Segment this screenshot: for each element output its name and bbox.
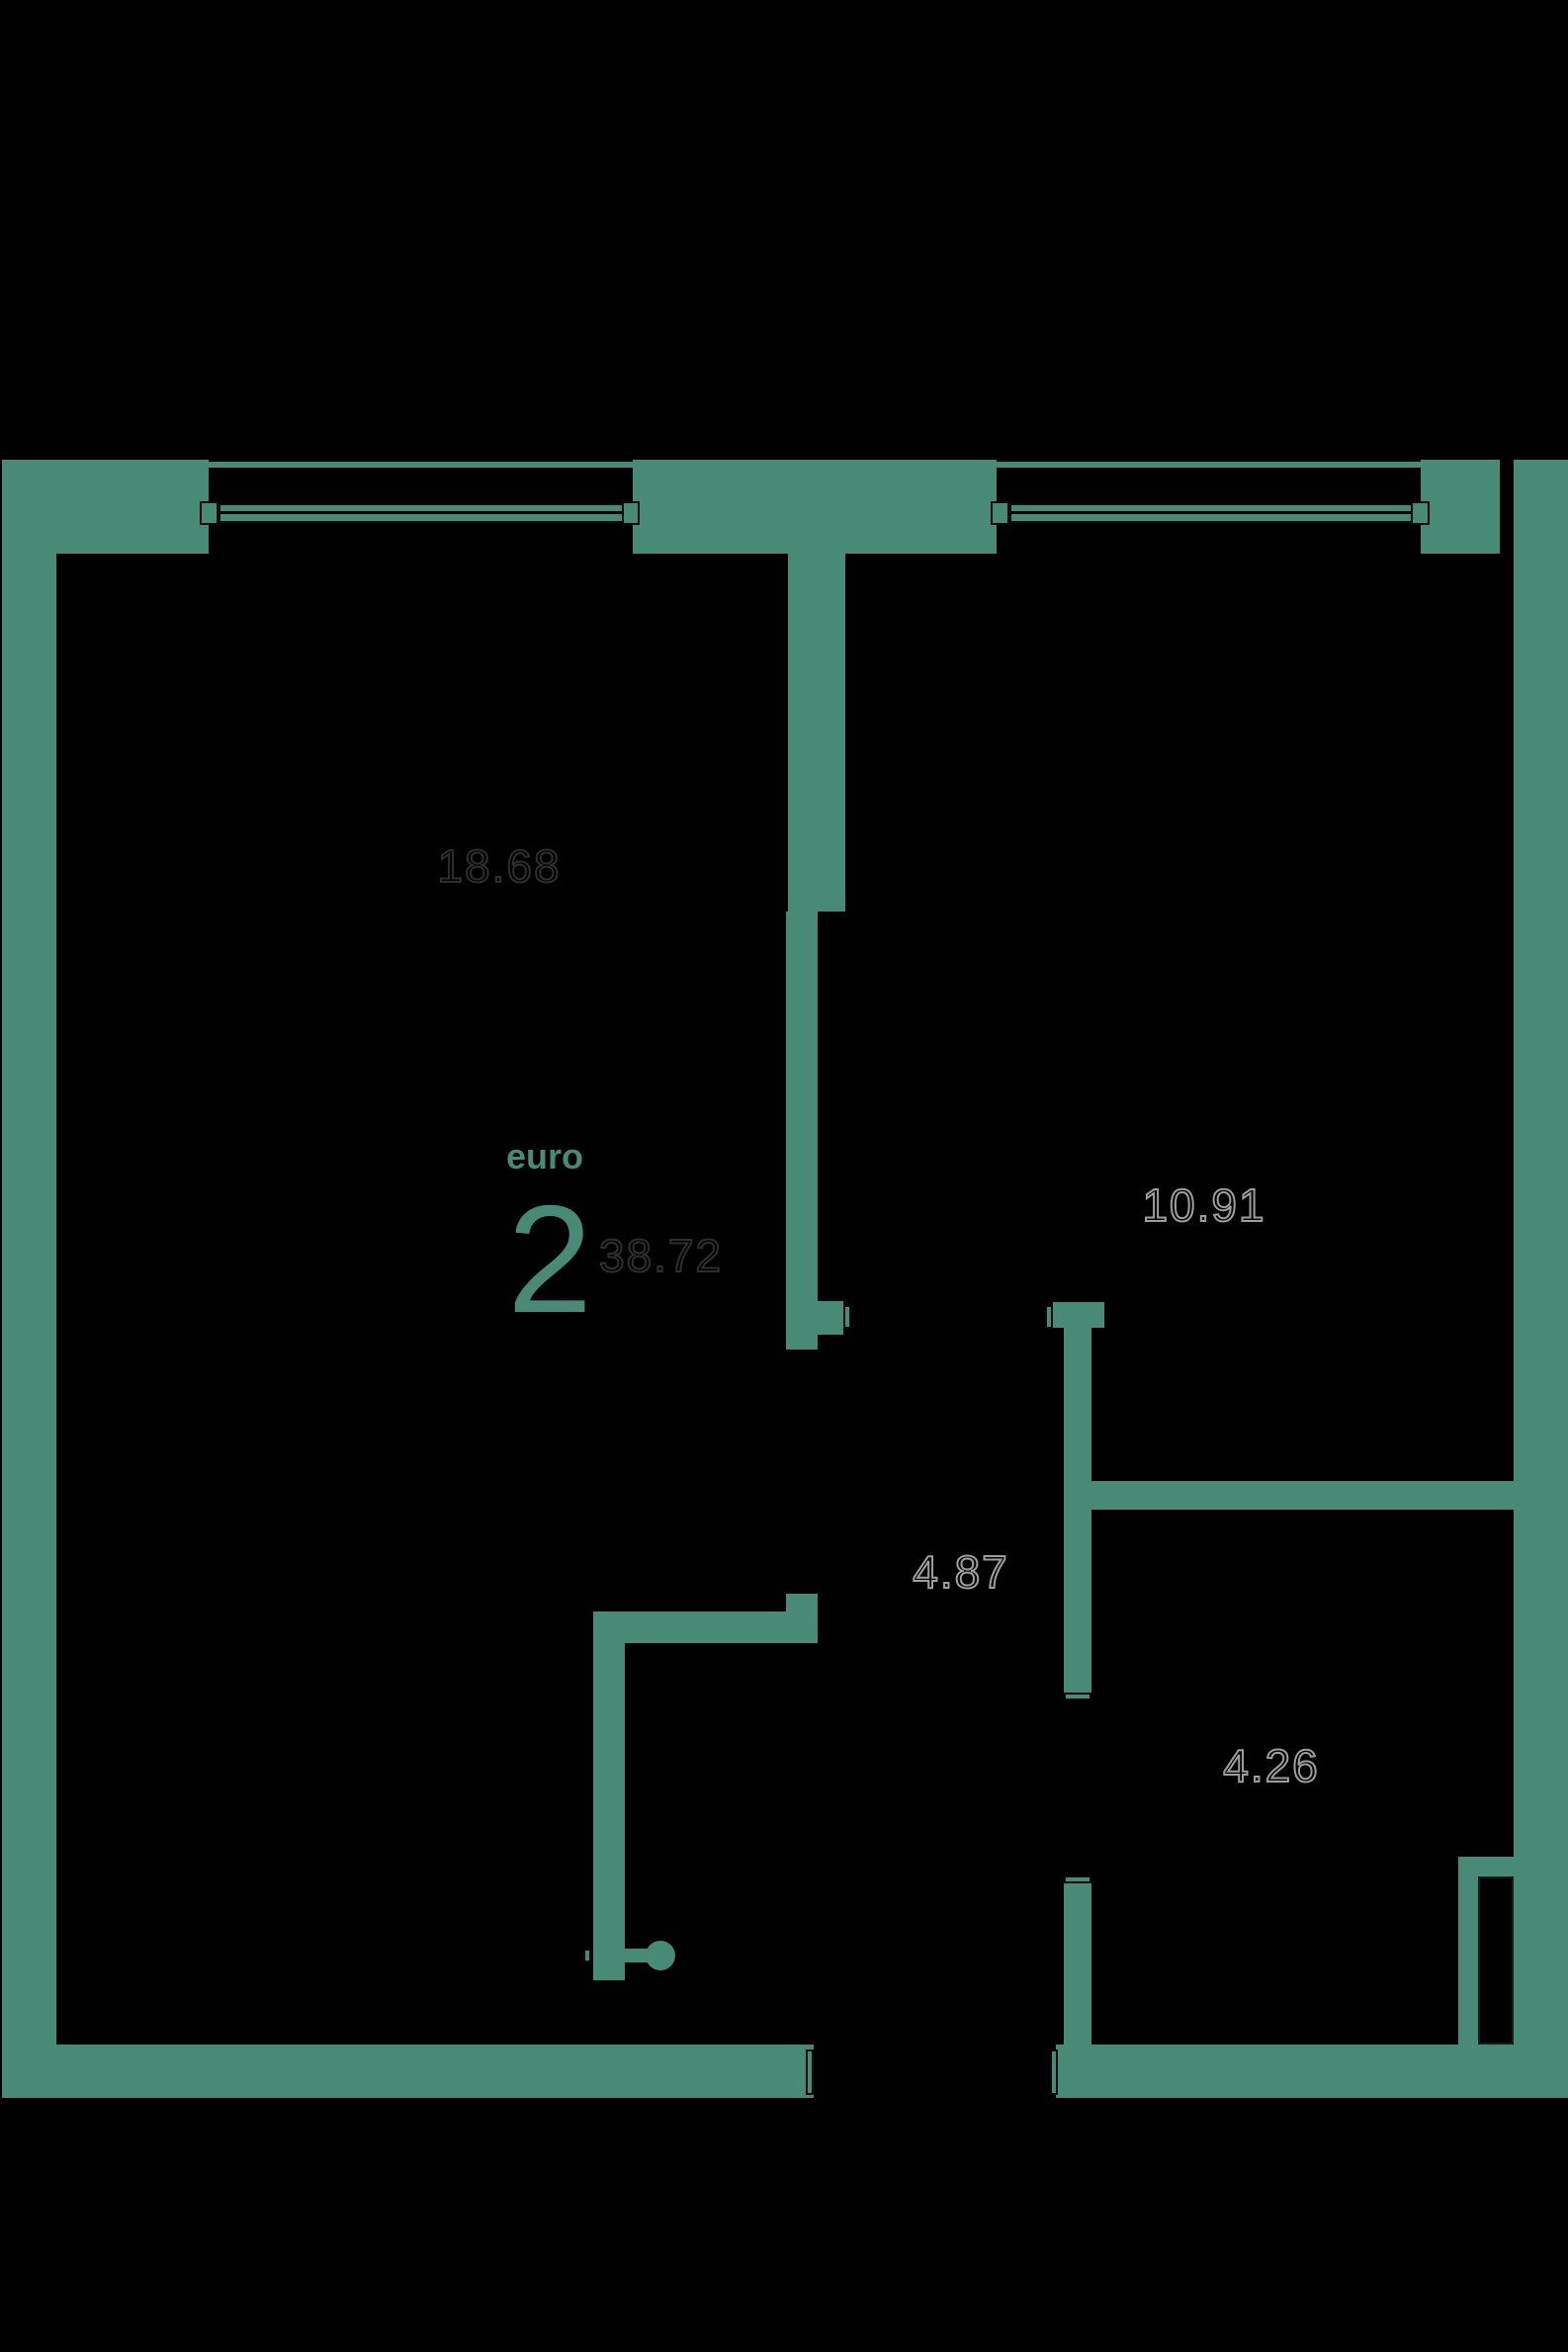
bedroom-door-frame-right — [1045, 1305, 1053, 1329]
bathroom-door-frame-top — [1064, 1693, 1091, 1700]
bathroom-door-frame-bottom — [1064, 1875, 1091, 1883]
top-wall-segment-middle — [633, 460, 997, 554]
window-1-cap-left — [200, 501, 218, 525]
outer-wall-right — [1514, 460, 1568, 2098]
floor-plan: 18.68 10.91 4.87 4.26 euro 2 38.72 — [0, 0, 1568, 2352]
vent-shaft-wall-left — [1458, 1857, 1478, 2045]
bedroom-door-wall — [1053, 1302, 1104, 1328]
wardrobe-wall-block — [786, 1594, 818, 1643]
outer-wall-left — [2, 554, 56, 2045]
outer-wall-bottom-left — [2, 2045, 814, 2098]
total-area-label: 38.72 — [599, 1233, 817, 1278]
vent-shaft-opening — [1478, 1876, 1514, 2045]
unit-type-label: euro — [506, 1139, 583, 1175]
unit-rooms-count: 2 — [507, 1182, 592, 1336]
interior-wall-main-upper — [788, 554, 845, 912]
outer-wall-bottom-right — [1056, 2045, 1568, 2098]
window-1-outer-line — [209, 462, 633, 468]
bedroom-door-frame-left — [843, 1305, 851, 1329]
window-2-glazing-gap — [1010, 511, 1412, 514]
wardrobe-wall-left — [593, 1643, 625, 1980]
entrance-door-frame-left — [806, 2049, 814, 2095]
bathroom-wall-top — [1091, 1481, 1514, 1510]
window-1-cap-right — [622, 501, 640, 525]
door-handle-icon — [646, 1941, 675, 1970]
top-wall-segment-left — [2, 460, 209, 554]
window-2-outer-line — [997, 462, 1421, 468]
vent-shaft-wall-top — [1478, 1857, 1514, 1876]
top-wall-segment-right — [1421, 460, 1500, 554]
wardrobe-wall-top — [593, 1612, 818, 1643]
interior-wall-main-lower — [786, 912, 818, 1350]
wardrobe-door-frame — [583, 1949, 591, 1962]
living-room-area-label: 18.68 — [376, 843, 623, 889]
bathroom-wall-left-lower — [1064, 1883, 1091, 2045]
window-1-glazing-gap — [219, 511, 623, 514]
bedroom-door-wall-stub — [818, 1301, 843, 1335]
hallway-area-label: 4.87 — [837, 1549, 1085, 1595]
bathroom-area-label: 4.26 — [1148, 1743, 1395, 1788]
window-2-cap-right — [1411, 501, 1430, 525]
window-2-glazing — [1009, 503, 1413, 523]
bedroom-area-label: 10.91 — [1081, 1182, 1328, 1228]
entrance-door-frame-right — [1050, 2049, 1058, 2095]
window-2-cap-left — [991, 501, 1009, 525]
bathroom-wall-left-upper — [1064, 1328, 1091, 1700]
window-1-glazing — [218, 503, 624, 523]
